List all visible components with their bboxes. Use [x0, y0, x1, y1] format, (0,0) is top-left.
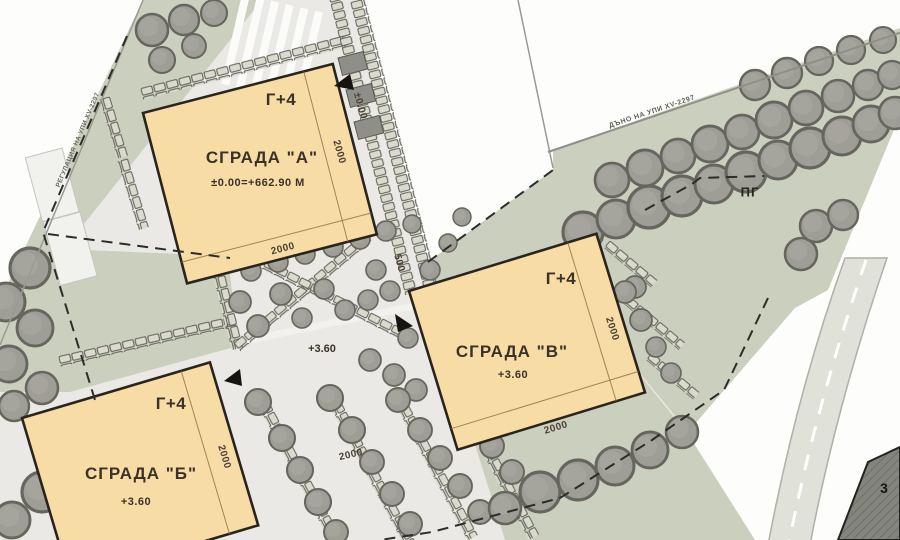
- tree-icon: [878, 61, 900, 89]
- tree-icon: [879, 97, 900, 129]
- tree-icon: [383, 364, 405, 386]
- site-plan-drawing: [0, 0, 900, 540]
- tree-icon: [661, 139, 695, 173]
- tree-icon: [870, 27, 896, 53]
- tree-icon: [292, 308, 312, 328]
- tree-icon: [666, 416, 698, 448]
- tree-icon: [169, 5, 199, 35]
- tree-icon: [627, 150, 663, 186]
- tree-icon: [376, 221, 396, 241]
- tree-icon: [358, 290, 378, 310]
- tree-icon: [0, 346, 27, 382]
- tree-icon: [439, 234, 457, 252]
- tree-icon: [380, 281, 400, 301]
- tree-icon: [229, 291, 251, 313]
- tree-icon: [428, 446, 452, 470]
- tree-icon: [828, 200, 858, 230]
- tree-icon: [756, 102, 792, 138]
- tree-icon: [360, 450, 384, 474]
- tree-icon: [386, 388, 410, 412]
- tree-icon: [500, 460, 524, 484]
- tree-icon: [359, 349, 381, 371]
- tree-icon: [661, 363, 681, 383]
- tree-icon: [182, 34, 206, 58]
- tree-icon: [772, 58, 802, 88]
- tree-icon: [398, 512, 422, 536]
- tree-icon: [136, 14, 168, 46]
- tree-icon: [269, 425, 295, 451]
- tree-icon: [366, 260, 386, 280]
- tree-icon: [630, 309, 652, 331]
- tree-icon: [558, 460, 598, 500]
- tree-icon: [10, 248, 50, 288]
- tree-icon: [448, 474, 472, 498]
- tree-icon: [149, 47, 175, 73]
- tree-icon: [0, 502, 30, 538]
- tree-icon: [380, 482, 404, 506]
- tree-icon: [335, 300, 355, 320]
- site-plan: Г+4 СГРАДА "А" ±0.00=+662.90 М Г+4 СГРАД…: [0, 0, 900, 540]
- tree-icon: [324, 520, 348, 540]
- tree-icon: [245, 389, 271, 415]
- tree-icon: [595, 163, 629, 197]
- tree-icon: [270, 283, 292, 305]
- tree-icon: [398, 328, 418, 348]
- tree-icon: [453, 208, 471, 226]
- tree-icon: [305, 489, 331, 515]
- tree-icon: [247, 315, 269, 337]
- tree-icon: [201, 0, 227, 26]
- tree-icon: [646, 337, 666, 357]
- tree-icon: [287, 457, 313, 483]
- tree-icon: [692, 126, 728, 162]
- tree-icon: [314, 279, 334, 299]
- tree-icon: [403, 215, 421, 233]
- tree-icon: [420, 260, 440, 280]
- tree-icon: [596, 447, 634, 485]
- tree-icon: [789, 91, 823, 125]
- tree-icon: [26, 372, 58, 404]
- tree-icon: [17, 310, 53, 346]
- tree-icon: [725, 115, 759, 149]
- tree-icon: [822, 80, 854, 112]
- tree-icon: [317, 385, 343, 411]
- neighbour-building-3: [838, 447, 900, 540]
- tree-icon: [339, 417, 365, 443]
- tree-icon: [408, 418, 432, 442]
- tree-icon: [489, 492, 521, 524]
